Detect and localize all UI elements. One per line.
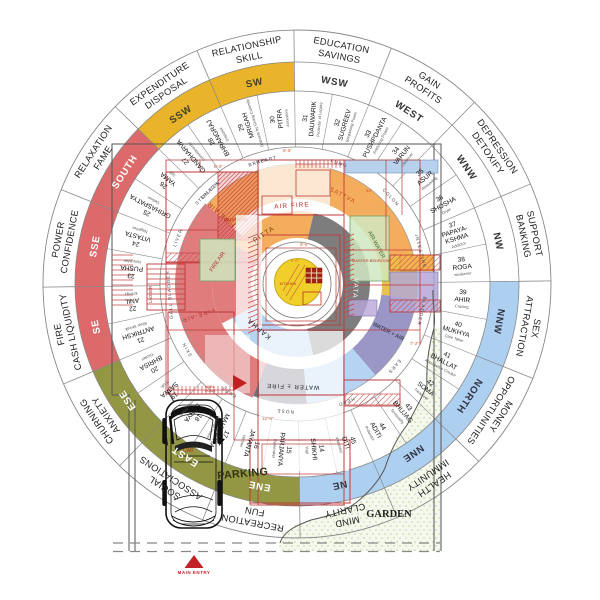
svg-text:KITCHEN: KITCHEN — [280, 282, 297, 286]
svg-text:8'-0": 8'-0" — [214, 164, 223, 169]
svg-text:MASTER BEDROOM: MASTER BEDROOM — [352, 258, 390, 263]
svg-text:LADDER: LADDER — [148, 286, 153, 303]
svg-text:MAIN ENTRY: MAIN ENTRY — [178, 570, 211, 575]
svg-text:12'-0": 12'-0" — [262, 416, 274, 421]
svg-text:54': 54' — [366, 188, 372, 193]
svg-text:7'-2": 7'-2" — [410, 341, 419, 346]
svg-text:8'-6": 8'-6" — [283, 148, 292, 153]
svg-text:9'-6": 9'-6" — [300, 242, 309, 247]
svg-text:GARDEN: GARDEN — [366, 509, 412, 520]
svg-text:9'-0": 9'-0" — [291, 258, 300, 263]
